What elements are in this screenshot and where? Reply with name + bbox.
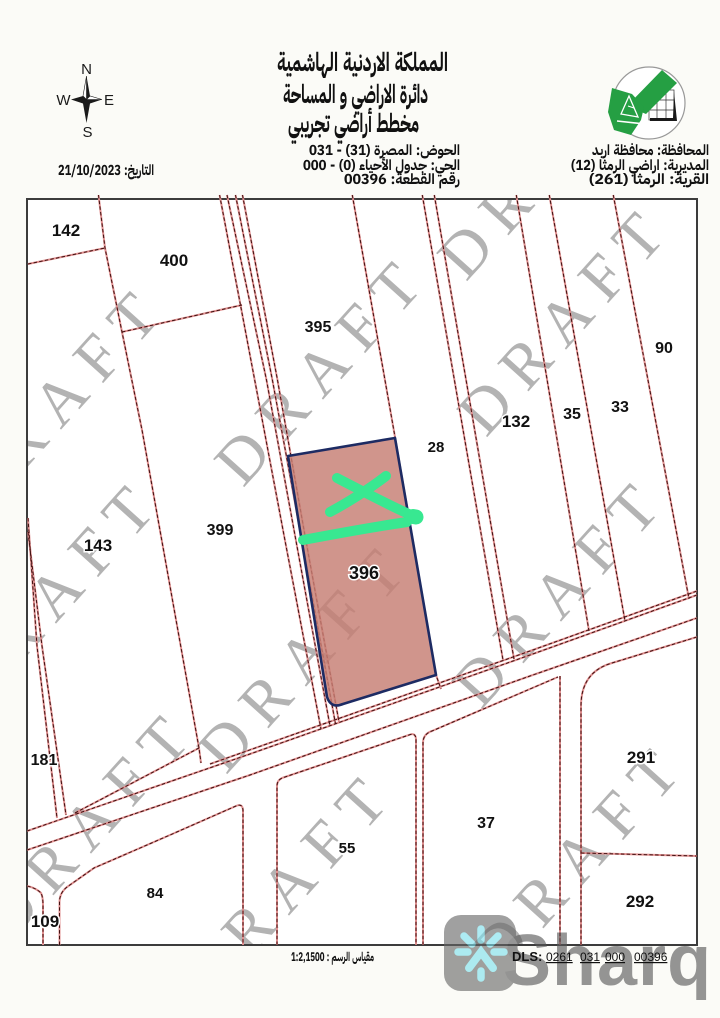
svg-text:399: 399 — [207, 522, 234, 539]
svg-text:395: 395 — [305, 319, 332, 336]
svg-text:E: E — [104, 92, 114, 109]
svg-text:396: 396 — [349, 563, 379, 583]
svg-text:33: 33 — [611, 399, 629, 416]
svg-text:143: 143 — [84, 536, 112, 555]
svg-text::: : — [538, 949, 542, 964]
svg-text:132: 132 — [502, 412, 530, 431]
svg-text:37: 37 — [477, 815, 495, 832]
svg-text:28: 28 — [428, 439, 445, 456]
svg-text:W: W — [56, 92, 71, 109]
svg-text:292: 292 — [626, 892, 654, 911]
svg-text:000: 000 — [605, 950, 625, 964]
svg-text:142: 142 — [52, 221, 80, 240]
svg-text:00396: 00396 — [634, 950, 668, 964]
svg-text:N: N — [81, 61, 92, 78]
svg-text:DLS: DLS — [512, 949, 538, 964]
svg-text:84: 84 — [147, 885, 164, 902]
svg-text:0261: 0261 — [546, 950, 573, 964]
svg-text:S: S — [82, 124, 92, 141]
svg-text:55: 55 — [339, 840, 356, 857]
svg-text:90: 90 — [655, 340, 673, 357]
svg-text:181: 181 — [31, 752, 58, 769]
svg-text:031: 031 — [580, 950, 600, 964]
svg-text:400: 400 — [160, 251, 188, 270]
svg-text:109: 109 — [31, 912, 59, 931]
svg-text:291: 291 — [627, 748, 655, 767]
svg-text:35: 35 — [563, 406, 581, 423]
